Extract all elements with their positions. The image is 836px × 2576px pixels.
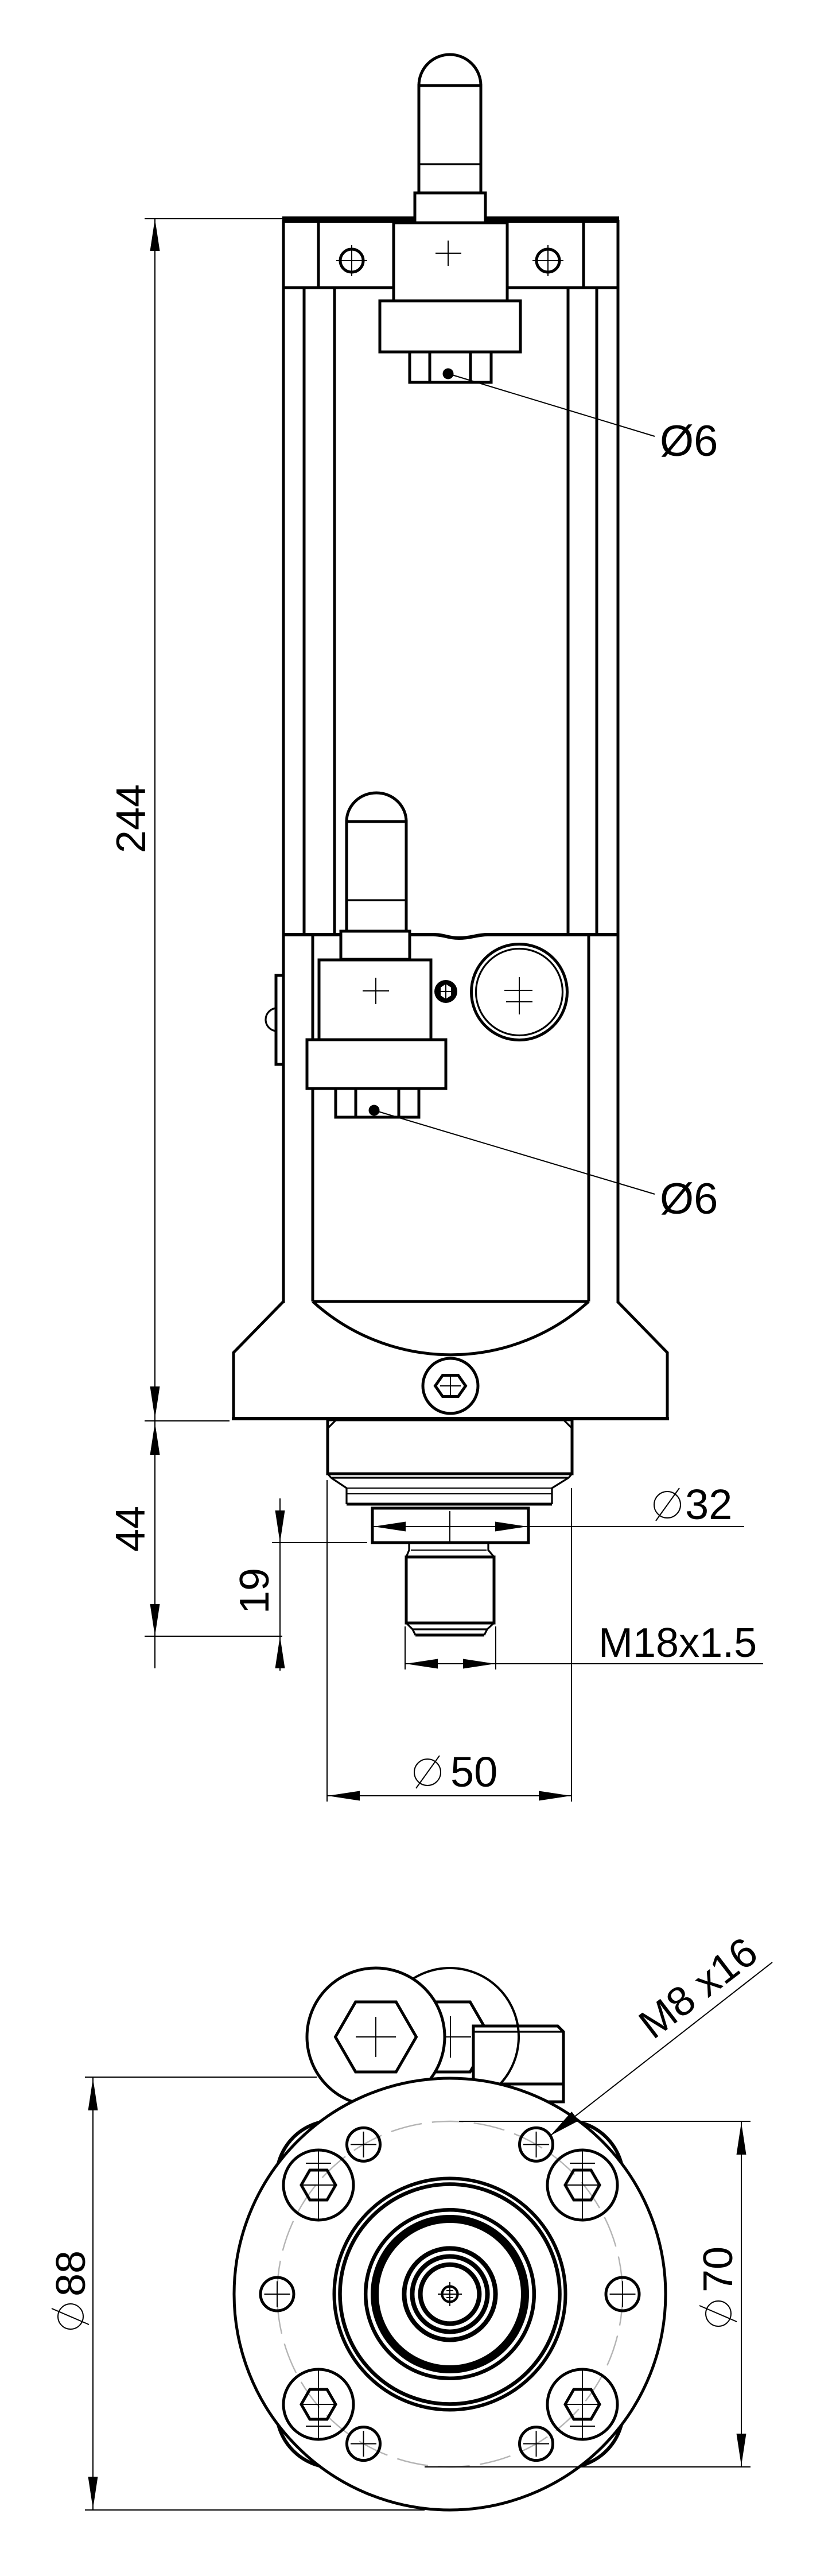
svg-text:Ø6: Ø6 (660, 417, 718, 466)
svg-text:50: 50 (450, 1748, 497, 1796)
svg-text:32: 32 (685, 1481, 732, 1528)
svg-text:Ø6: Ø6 (660, 1175, 718, 1223)
svg-text:19: 19 (232, 1568, 278, 1614)
svg-text:M18x1.5: M18x1.5 (598, 1620, 757, 1666)
svg-text:88: 88 (48, 2250, 94, 2296)
svg-text:44: 44 (108, 1506, 154, 1552)
svg-text:70: 70 (695, 2246, 741, 2292)
svg-text:244: 244 (108, 784, 154, 853)
